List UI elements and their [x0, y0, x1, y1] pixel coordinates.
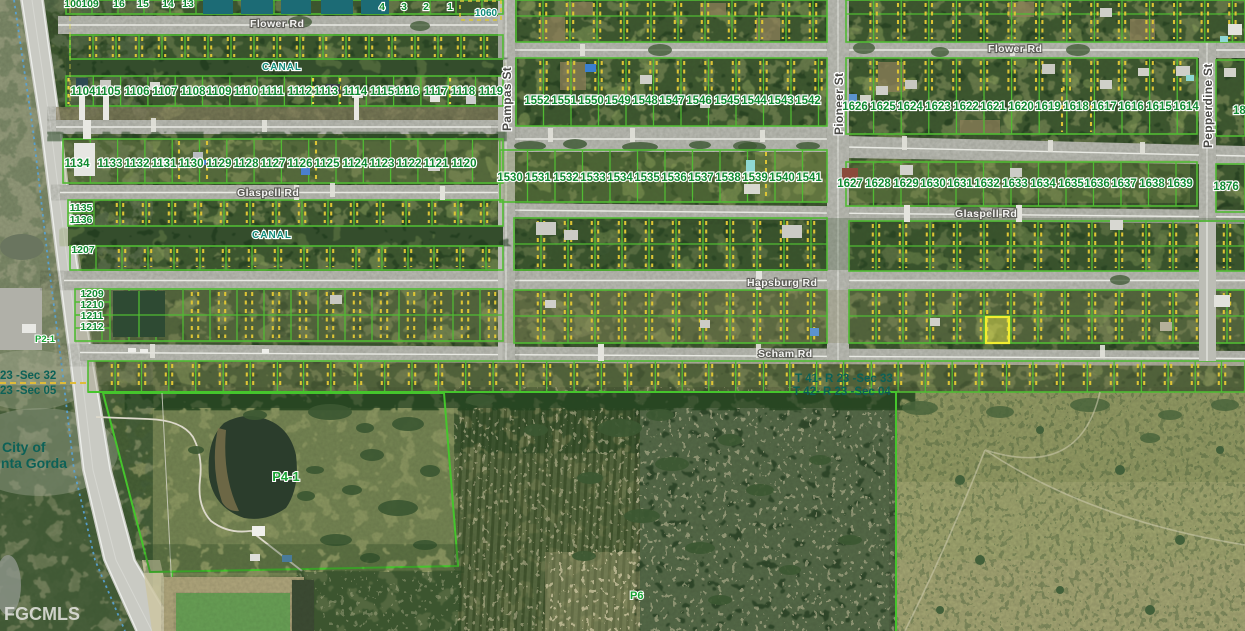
- svg-text:1122: 1122: [397, 158, 422, 170]
- svg-text:1638: 1638: [1139, 178, 1165, 190]
- svg-text:1130: 1130: [179, 158, 204, 170]
- svg-text:1126: 1126: [288, 158, 313, 170]
- svg-text:1541: 1541: [796, 172, 822, 184]
- svg-text:1631: 1631: [947, 178, 973, 190]
- svg-text:CANAL: CANAL: [262, 62, 302, 73]
- svg-text:1125: 1125: [315, 158, 341, 170]
- svg-text:1128: 1128: [234, 158, 260, 170]
- svg-text:1624: 1624: [897, 101, 923, 113]
- svg-text:Scham Rd: Scham Rd: [758, 348, 813, 360]
- svg-text:T 42- R 23 -Sec 04: T 42- R 23 -Sec 04: [793, 386, 891, 398]
- svg-text:1634: 1634: [1030, 178, 1056, 190]
- svg-text:1117: 1117: [424, 86, 448, 98]
- svg-text:1544: 1544: [741, 95, 767, 107]
- svg-text:1116: 1116: [395, 86, 419, 98]
- svg-text:P2-1: P2-1: [35, 334, 56, 345]
- svg-text:187: 187: [1233, 105, 1245, 117]
- svg-text:1621: 1621: [980, 101, 1006, 113]
- svg-text:Glaspell Rd: Glaspell Rd: [955, 208, 1017, 220]
- svg-text:1531: 1531: [525, 172, 551, 184]
- svg-text:1131: 1131: [152, 158, 178, 170]
- svg-text:1110: 1110: [234, 86, 258, 98]
- svg-text:1632: 1632: [974, 178, 1000, 190]
- svg-text:1536: 1536: [661, 172, 687, 184]
- svg-text:1120: 1120: [452, 158, 477, 170]
- svg-text:1112: 1112: [288, 86, 312, 98]
- svg-text:1545: 1545: [714, 95, 740, 107]
- svg-text:1132: 1132: [125, 158, 150, 170]
- svg-text:1538: 1538: [715, 172, 741, 184]
- svg-text:1551: 1551: [551, 95, 577, 107]
- svg-text:1535: 1535: [634, 172, 660, 184]
- svg-text:1119: 1119: [479, 86, 503, 98]
- svg-text:1639: 1639: [1167, 178, 1193, 190]
- svg-text:1636: 1636: [1084, 178, 1110, 190]
- svg-text:1129: 1129: [207, 158, 232, 170]
- svg-text:Hapsburg Rd: Hapsburg Rd: [747, 277, 817, 289]
- svg-text:T 41- R 23 -Sec 33: T 41- R 23 -Sec 33: [795, 373, 893, 385]
- svg-text:23 -Sec 05: 23 -Sec 05: [0, 385, 57, 397]
- svg-text:1124: 1124: [343, 158, 369, 170]
- svg-text:1618: 1618: [1063, 101, 1089, 113]
- svg-text:1105: 1105: [96, 86, 122, 98]
- svg-text:1637: 1637: [1111, 178, 1137, 190]
- svg-text:15: 15: [137, 0, 149, 10]
- svg-text:1635: 1635: [1058, 178, 1084, 190]
- svg-text:1530: 1530: [497, 172, 523, 184]
- svg-text:1542: 1542: [795, 95, 821, 107]
- svg-text:1543: 1543: [768, 95, 794, 107]
- svg-text:1533: 1533: [580, 172, 606, 184]
- svg-text:1136: 1136: [70, 214, 93, 226]
- svg-text:CANAL: CANAL: [252, 230, 292, 241]
- svg-text:1109: 1109: [207, 86, 232, 98]
- svg-text:1619: 1619: [1035, 101, 1061, 113]
- svg-text:1633: 1633: [1002, 178, 1028, 190]
- svg-text:1614: 1614: [1173, 101, 1199, 113]
- svg-text:1549: 1549: [605, 95, 631, 107]
- svg-text:Pampas St: Pampas St: [500, 67, 514, 131]
- svg-text:1127: 1127: [261, 158, 286, 170]
- svg-text:1617: 1617: [1091, 101, 1117, 113]
- svg-text:109: 109: [81, 0, 99, 10]
- svg-text:3: 3: [401, 1, 407, 13]
- svg-text:1534: 1534: [607, 172, 633, 184]
- svg-text:1626: 1626: [842, 101, 868, 113]
- svg-text:100: 100: [64, 0, 82, 10]
- svg-text:Flower Rd: Flower Rd: [250, 18, 304, 30]
- svg-text:1115: 1115: [370, 86, 395, 98]
- svg-text:1547: 1547: [659, 95, 685, 107]
- svg-text:1537: 1537: [688, 172, 714, 184]
- svg-text:1060: 1060: [475, 8, 498, 19]
- svg-text:1627: 1627: [837, 178, 863, 190]
- svg-text:1629: 1629: [893, 178, 919, 190]
- svg-text:23 -Sec 32: 23 -Sec 32: [0, 370, 56, 382]
- svg-text:P6: P6: [630, 590, 643, 602]
- svg-text:1546: 1546: [686, 95, 712, 107]
- svg-text:1113: 1113: [314, 86, 338, 98]
- svg-text:1615: 1615: [1146, 101, 1172, 113]
- svg-text:1118: 1118: [451, 86, 476, 98]
- svg-text:1532: 1532: [553, 172, 579, 184]
- svg-text:16: 16: [113, 0, 125, 10]
- svg-text:1622: 1622: [953, 101, 979, 113]
- svg-text:1106: 1106: [125, 86, 150, 98]
- svg-text:1114: 1114: [343, 86, 368, 98]
- svg-text:1620: 1620: [1008, 101, 1034, 113]
- svg-text:1135: 1135: [70, 202, 93, 214]
- svg-text:Punta Gorda: Punta Gorda: [0, 455, 67, 471]
- svg-text:1: 1: [447, 1, 453, 13]
- svg-text:Flower Rd: Flower Rd: [988, 43, 1042, 55]
- svg-text:1107: 1107: [153, 86, 178, 98]
- svg-text:1625: 1625: [870, 101, 896, 113]
- svg-text:Glaspell Rd: Glaspell Rd: [237, 187, 299, 199]
- svg-text:P4-1: P4-1: [272, 469, 299, 484]
- svg-text:1207: 1207: [71, 244, 95, 256]
- svg-text:1623: 1623: [925, 101, 951, 113]
- svg-text:1628: 1628: [865, 178, 891, 190]
- svg-text:1212: 1212: [80, 321, 104, 333]
- svg-text:1548: 1548: [632, 95, 658, 107]
- svg-text:2: 2: [423, 1, 429, 13]
- svg-text:1108: 1108: [181, 86, 207, 98]
- svg-text:1123: 1123: [370, 158, 395, 170]
- svg-text:1616: 1616: [1118, 101, 1144, 113]
- svg-text:FGCMLS: FGCMLS: [4, 604, 80, 624]
- svg-text:1539: 1539: [742, 172, 768, 184]
- svg-text:City of: City of: [2, 439, 46, 455]
- svg-text:1121: 1121: [424, 158, 450, 170]
- svg-text:1540: 1540: [769, 172, 795, 184]
- svg-text:13: 13: [182, 0, 194, 10]
- svg-text:1876: 1876: [1213, 181, 1239, 193]
- svg-text:4: 4: [379, 1, 385, 13]
- svg-text:14: 14: [162, 0, 174, 10]
- svg-text:1133: 1133: [98, 158, 123, 170]
- svg-text:1552: 1552: [524, 95, 550, 107]
- svg-text:1104: 1104: [71, 86, 97, 98]
- svg-text:1134: 1134: [65, 158, 91, 170]
- svg-text:1550: 1550: [578, 95, 604, 107]
- svg-text:Pepperdine St: Pepperdine St: [1201, 63, 1215, 148]
- svg-text:1111: 1111: [260, 86, 284, 98]
- svg-text:1630: 1630: [920, 178, 946, 190]
